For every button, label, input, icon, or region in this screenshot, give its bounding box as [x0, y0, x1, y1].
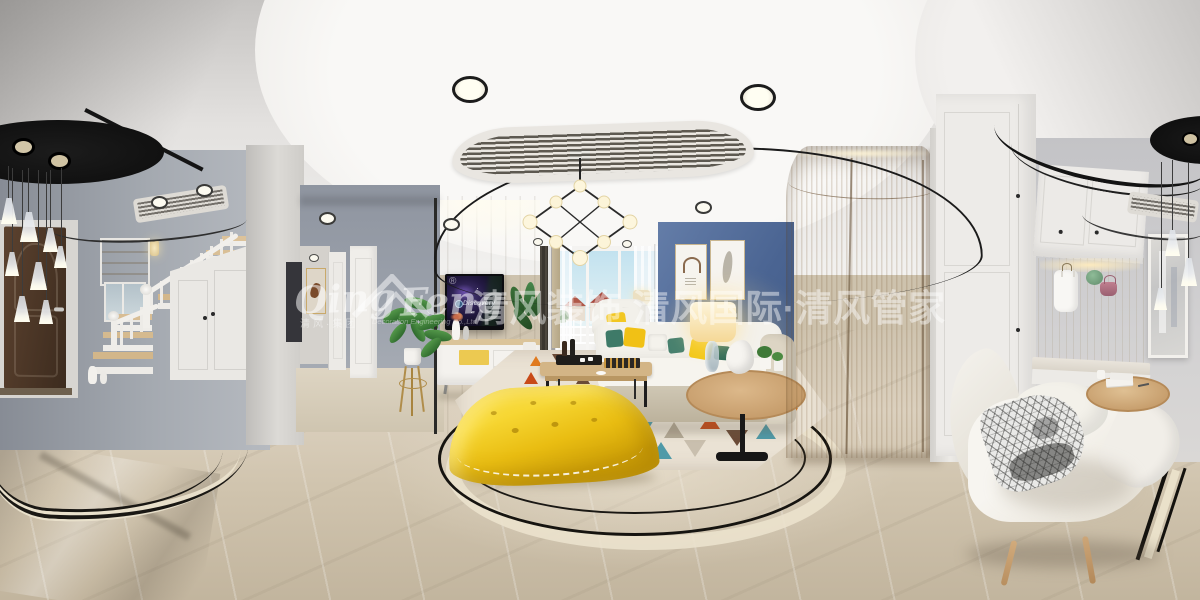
teacup	[588, 357, 593, 361]
tuft-dimple	[551, 422, 558, 427]
wardrobe-floor-shadow	[790, 452, 940, 464]
table-lamp-shade	[690, 302, 736, 342]
panorama-scene: Discovery	[0, 0, 1200, 600]
plant-stand	[380, 292, 440, 418]
mirror-reflection-door	[1171, 267, 1177, 327]
serving-tray	[556, 355, 602, 365]
recessed-downlight	[452, 76, 488, 103]
game-box	[604, 358, 640, 368]
foyer-window-shade	[100, 238, 150, 286]
pendant-string	[28, 168, 29, 212]
side-table-foot	[716, 452, 768, 461]
table-lamp-base	[705, 341, 719, 372]
shirt-collar	[1061, 271, 1075, 277]
sofa-pillow-teal-2	[667, 337, 685, 354]
sofa-pillow-teal	[605, 329, 623, 347]
pillow-dark-patch	[1030, 415, 1061, 442]
cloakroom-niche	[1038, 258, 1144, 366]
door-panel-line	[355, 258, 372, 364]
wine-bottle	[562, 341, 567, 356]
wardrobe-knob	[1016, 194, 1020, 198]
disc-spotlight	[48, 152, 71, 170]
pendant-string	[50, 170, 51, 228]
stand-leg	[399, 366, 406, 412]
cabinet-door-frame	[178, 280, 208, 370]
sculpture-figurine	[726, 340, 754, 374]
stair-newel-finial-2	[108, 311, 119, 321]
console-drawer-yellow	[459, 350, 489, 365]
small-plate	[596, 371, 606, 375]
stand-leg	[411, 368, 413, 416]
coffee-table-leg	[634, 379, 636, 399]
sofa-pillow-white	[648, 334, 667, 351]
stair-newel-post-2	[111, 318, 117, 350]
door-handle	[54, 307, 64, 311]
lounge-chair-shadow	[966, 540, 1161, 568]
rug-triangle	[524, 372, 538, 384]
stand-ring	[399, 378, 427, 389]
stair-sconce	[150, 240, 159, 256]
tuft-dimple	[491, 411, 497, 415]
teacup	[580, 358, 585, 362]
pendant-string	[1172, 160, 1173, 230]
stair-base-vase	[88, 366, 97, 384]
baluster	[120, 322, 123, 345]
tv-brand-globe-icon	[455, 300, 463, 308]
console-flowers	[449, 312, 463, 322]
tv-brand-logo: Discovery	[463, 300, 495, 307]
pendant-string	[38, 170, 39, 262]
ac-vent-slats	[1130, 196, 1195, 219]
recessed-downlight	[443, 218, 460, 231]
stair-base-vase-2	[100, 371, 107, 384]
door-panel-bottom	[14, 315, 58, 378]
shirt-hanger-hook	[1062, 263, 1072, 271]
cabinet-door-frame	[214, 270, 248, 370]
coffee-table-leg	[644, 381, 647, 407]
pendant-string	[1188, 162, 1189, 258]
console-vase	[452, 320, 460, 340]
tray-table-book	[1110, 372, 1133, 380]
recessed-downlight	[695, 201, 712, 214]
plant-leaf	[387, 320, 410, 345]
stand-leg	[417, 366, 424, 412]
recessed-downlight	[533, 238, 543, 246]
recessed-downlight	[319, 212, 336, 225]
chandelier	[498, 158, 662, 270]
door-threshold	[0, 388, 72, 395]
pendant-string	[8, 166, 9, 198]
wardrobe-knob	[1016, 328, 1020, 332]
corridor-door-2	[350, 246, 377, 378]
planter-greens	[757, 346, 772, 358]
corridor-ceiling-shadow	[300, 196, 440, 206]
cabinet-knob	[203, 316, 207, 320]
cabinet-knob	[211, 312, 215, 316]
stair-newel-post	[143, 292, 150, 328]
tray-table-cup	[1097, 370, 1105, 379]
tuft-dimple	[512, 428, 519, 433]
planter-greens	[772, 352, 783, 361]
pendant-string	[61, 168, 62, 246]
planter-pot	[774, 360, 783, 371]
corridor-artwork	[306, 268, 326, 314]
plant-pot	[404, 348, 421, 365]
disc-spotlight	[12, 138, 35, 156]
sofa-pillow-yellow	[623, 327, 646, 348]
artwork-horse-motif	[309, 282, 322, 299]
console-vase-2	[463, 326, 469, 340]
recessed-downlight	[151, 196, 168, 209]
pink-handbag	[1100, 282, 1117, 296]
door-panel-line	[333, 262, 343, 359]
corridor-door-1	[328, 252, 346, 370]
disc-spotlight	[1182, 132, 1199, 146]
recessed-downlight	[309, 254, 319, 262]
recessed-downlight	[622, 240, 632, 248]
recessed-downlight	[196, 184, 213, 197]
tuft-dimple	[530, 401, 536, 405]
corridor-dark-panel	[286, 262, 302, 342]
wine-bottle	[570, 339, 575, 356]
side-table-pedestal	[740, 414, 745, 456]
handbag-handle	[1104, 275, 1116, 284]
step	[93, 352, 153, 359]
tuft-dimple	[570, 401, 576, 405]
rug-triangle	[684, 440, 706, 457]
recessed-downlight	[740, 84, 776, 111]
stitch-line	[457, 443, 644, 481]
pendant-string	[1161, 162, 1162, 288]
stair-newel-finial	[140, 284, 152, 295]
tv-star	[471, 312, 472, 313]
plant-leaf	[403, 295, 433, 312]
tuft-dimple	[591, 418, 597, 422]
coffee-table-apron	[545, 376, 647, 381]
